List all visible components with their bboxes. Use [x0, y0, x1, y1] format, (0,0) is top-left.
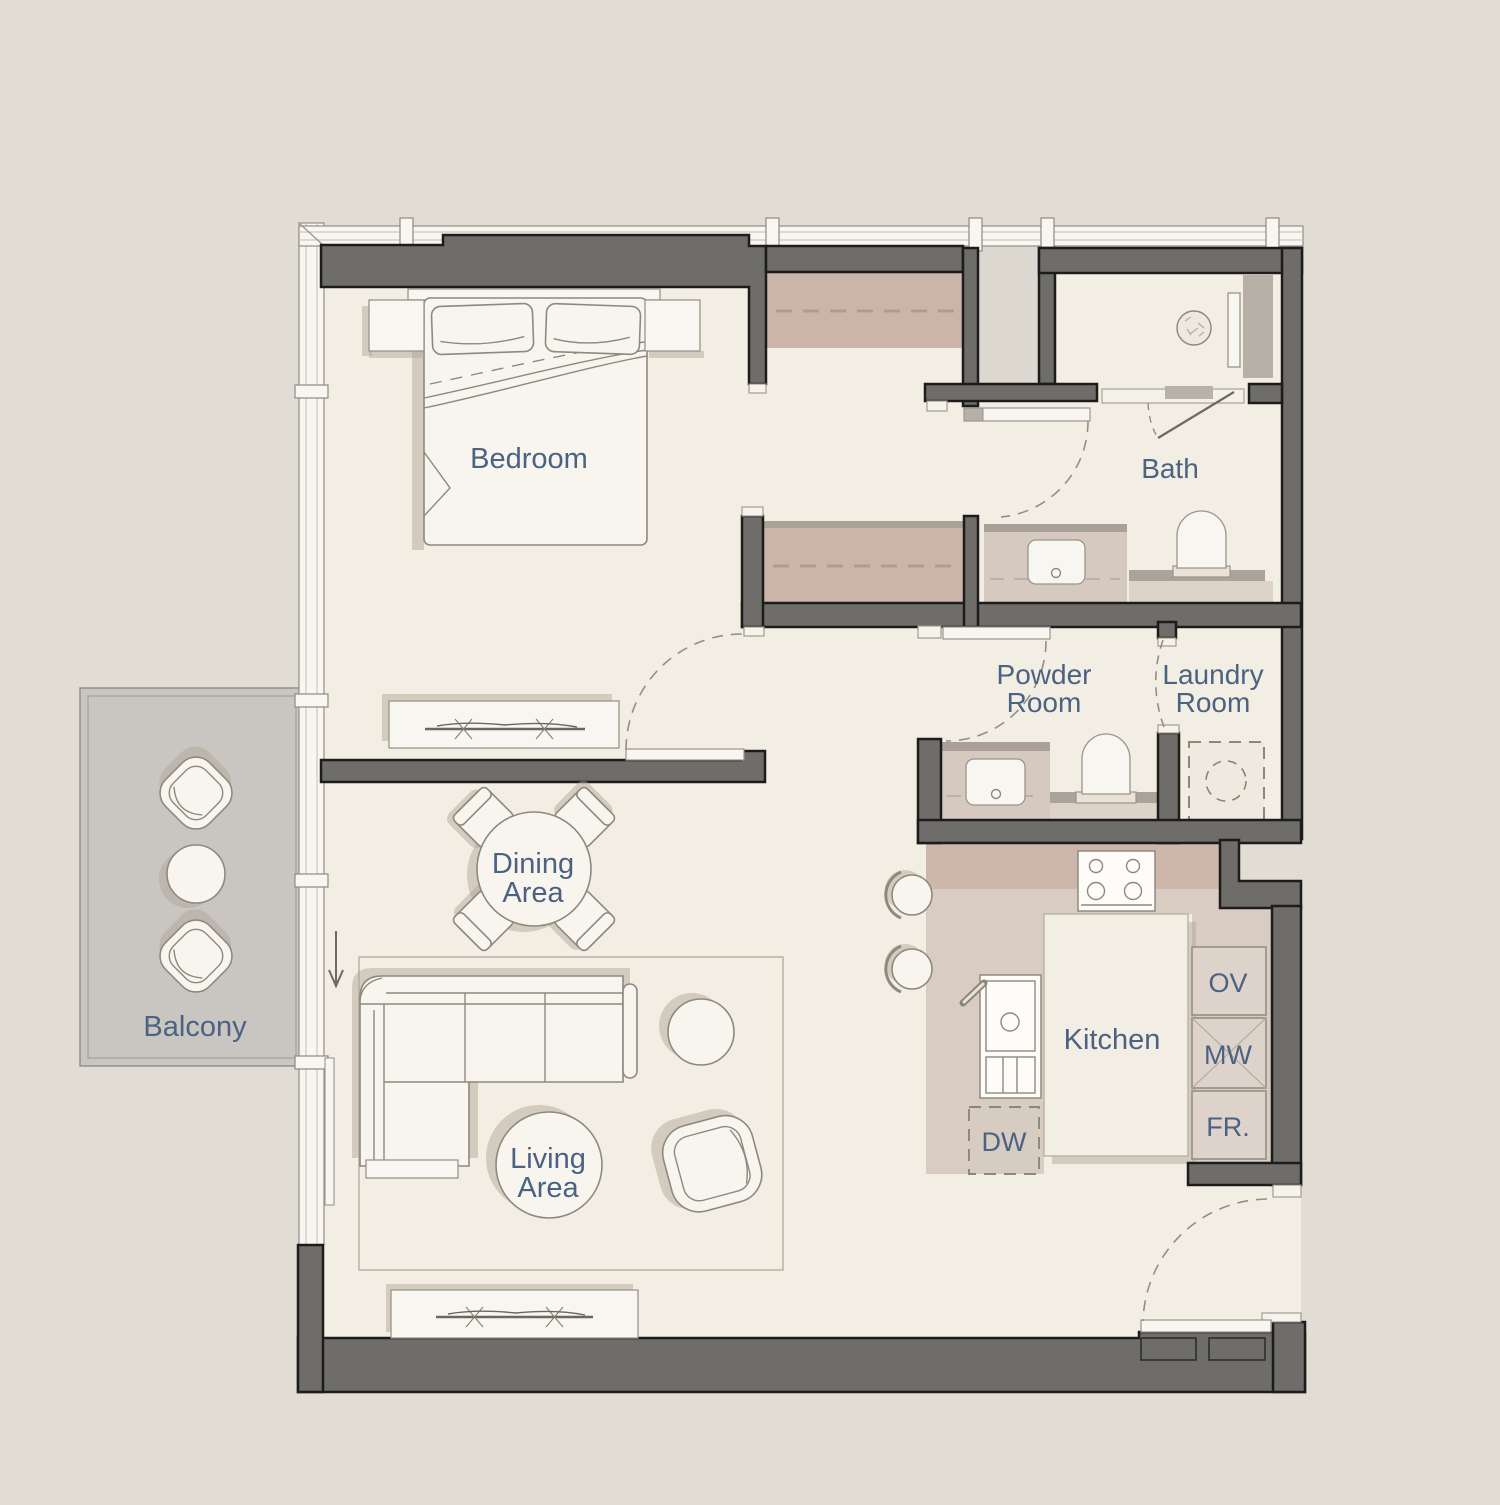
svg-text:OV: OV [1208, 968, 1247, 998]
svg-text:Kitchen: Kitchen [1064, 1024, 1161, 1056]
svg-text:Laundry: Laundry [1162, 659, 1263, 690]
svg-text:Powder: Powder [997, 659, 1092, 690]
svg-text:Living: Living [510, 1143, 586, 1175]
svg-text:Dining: Dining [492, 848, 574, 880]
svg-text:Bath: Bath [1141, 453, 1199, 484]
svg-text:Balcony: Balcony [143, 1011, 247, 1043]
svg-text:Area: Area [502, 877, 564, 909]
svg-text:MW: MW [1204, 1040, 1252, 1070]
svg-text:Room: Room [1007, 687, 1082, 718]
svg-text:Area: Area [517, 1172, 579, 1204]
svg-text:FR.: FR. [1206, 1112, 1250, 1142]
svg-text:Room: Room [1176, 687, 1251, 718]
svg-text:DW: DW [982, 1127, 1027, 1157]
svg-text:Bedroom: Bedroom [470, 443, 588, 475]
